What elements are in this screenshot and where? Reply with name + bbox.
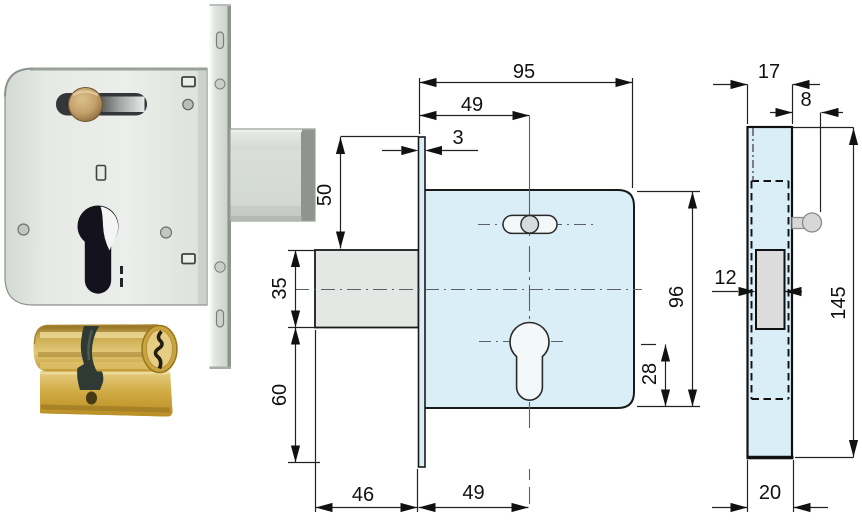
svg-text:49: 49 [462,482,484,504]
svg-text:60: 60 [269,384,291,406]
svg-text:8: 8 [800,89,811,111]
svg-text:17: 17 [758,61,780,83]
svg-text:50: 50 [314,184,336,206]
svg-text:49: 49 [461,94,483,116]
svg-text:96: 96 [666,286,688,308]
svg-text:145: 145 [828,286,850,319]
svg-text:28: 28 [639,363,661,385]
svg-text:3: 3 [452,127,463,149]
svg-text:46: 46 [352,484,374,506]
svg-text:35: 35 [269,277,291,299]
svg-text:20: 20 [759,482,781,504]
svg-text:95: 95 [513,61,535,83]
svg-text:12: 12 [714,267,736,289]
